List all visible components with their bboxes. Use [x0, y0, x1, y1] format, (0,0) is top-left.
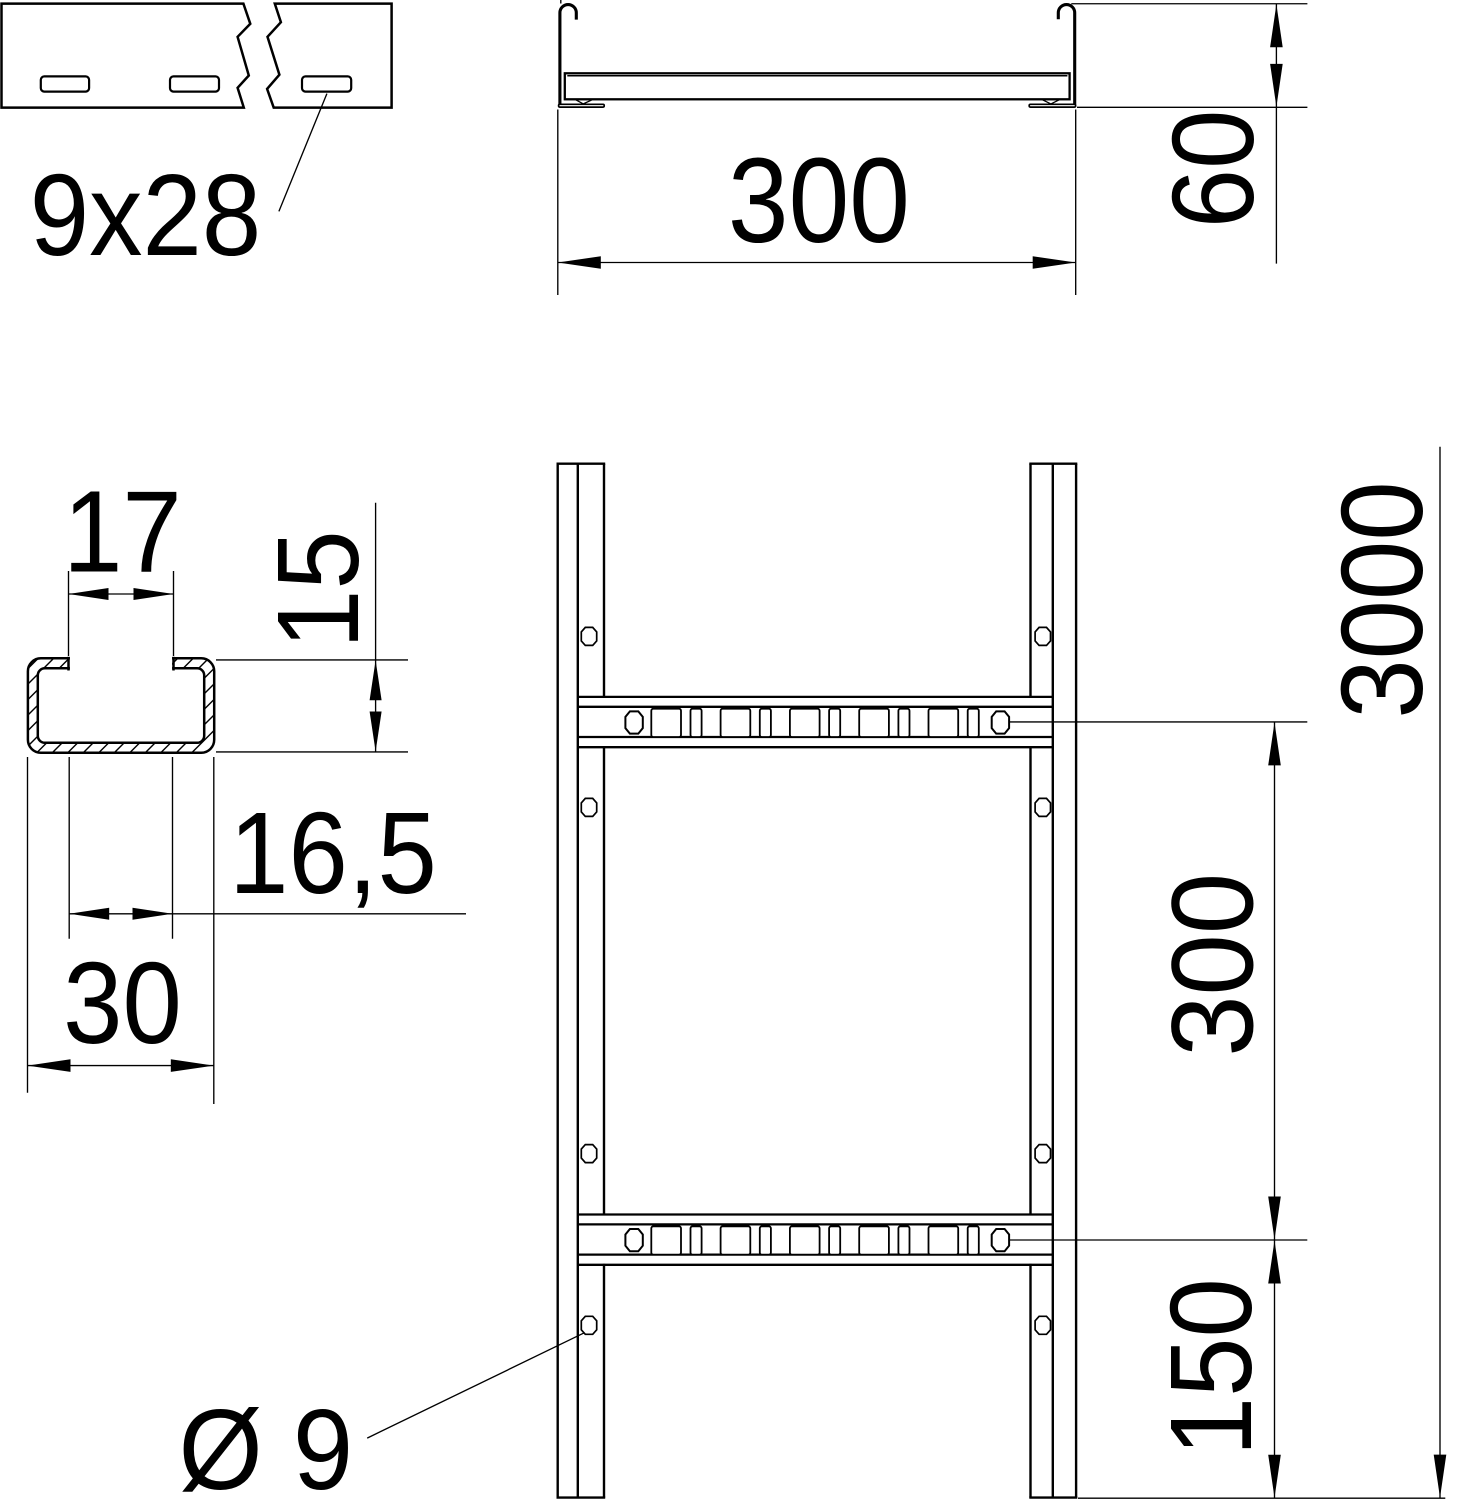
svg-text:3000: 3000 — [1317, 481, 1447, 718]
svg-text:300: 300 — [1148, 873, 1277, 1057]
svg-text:300: 300 — [728, 134, 910, 268]
svg-text:Ø 9: Ø 9 — [179, 1385, 354, 1500]
svg-text:16,5: 16,5 — [229, 788, 437, 918]
svg-text:15: 15 — [253, 530, 383, 649]
svg-text:150: 150 — [1146, 1278, 1276, 1456]
svg-text:60: 60 — [1148, 110, 1278, 229]
svg-text:17: 17 — [63, 466, 182, 596]
svg-text:30: 30 — [63, 938, 182, 1068]
svg-text:9x28: 9x28 — [30, 150, 261, 280]
